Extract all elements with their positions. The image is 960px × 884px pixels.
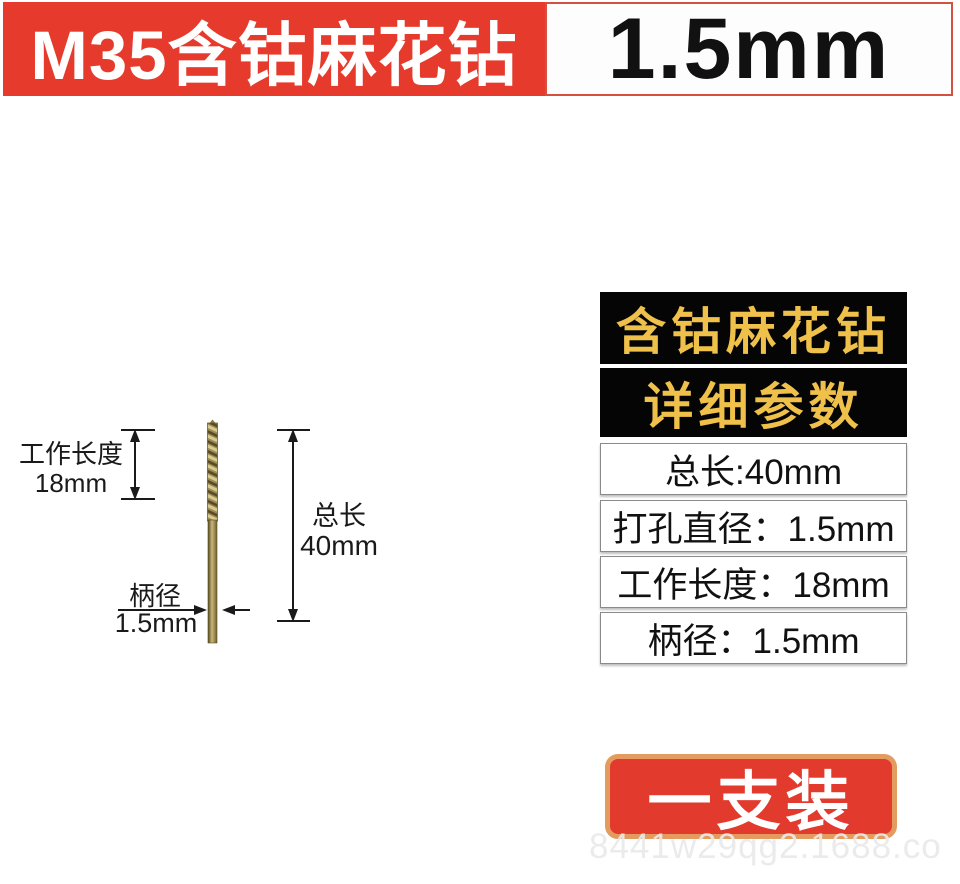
watermark-text: 8441w29qg2.1688.co (589, 827, 942, 867)
total-length-label: 总长 40mm (289, 502, 389, 560)
spec-row-working-length: 工作长度：18mm (600, 556, 907, 608)
spec-row-text: 柄径：1.5mm (648, 613, 860, 664)
spec-row-text: 工作长度：18mm (617, 557, 889, 608)
spec-panel-title-text: 含钴麻花钻 (616, 292, 891, 364)
spec-row-total-length: 总长:40mm (600, 443, 907, 495)
product-image-page: { "banner": { "title": "M35含钴麻花钻", "size… (0, 0, 960, 884)
spec-row-shank-diameter: 柄径：1.5mm (600, 612, 907, 664)
spec-panel-title: 含钴麻花钻 (600, 292, 907, 364)
spec-row-text: 总长:40mm (665, 444, 842, 495)
size-value: 1.5mm (608, 0, 891, 99)
spec-row-text: 打孔直径：1.5mm (613, 501, 895, 552)
spec-panel-subtitle: 详细参数 (600, 368, 907, 437)
working-length-text: 工作长度 (15, 440, 127, 469)
shank-label: 柄径 (105, 582, 205, 611)
working-length-value: 18mm (15, 469, 127, 498)
shank-value: 1.5mm (103, 609, 209, 638)
drill-bit-illustration (208, 420, 218, 644)
product-title: M35含钴麻花钻 (30, 0, 517, 99)
spec-panel-subtitle-text: 详细参数 (644, 367, 864, 439)
size-badge: 1.5mm (545, 2, 953, 96)
working-length-label: 工作长度 18mm (15, 440, 127, 498)
spec-row-hole-diameter: 打孔直径：1.5mm (600, 500, 907, 552)
total-length-value: 40mm (289, 531, 389, 560)
header-banner: M35含钴麻花钻 (3, 2, 545, 96)
total-length-text: 总长 (289, 502, 389, 531)
